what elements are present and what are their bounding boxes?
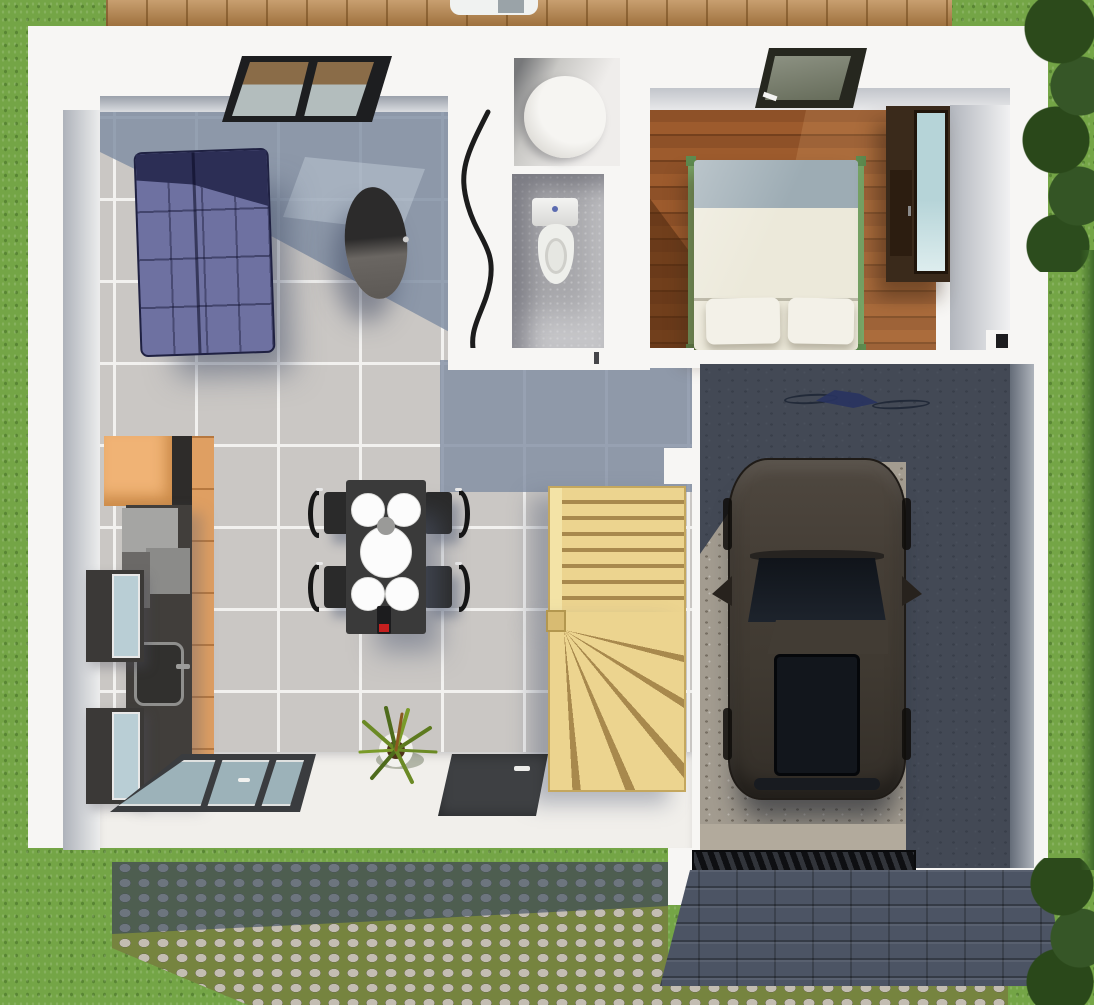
floor-plan-render — [0, 0, 1094, 1005]
chair-chrome-accent — [455, 488, 462, 491]
kitchen-appliance-grey — [146, 548, 190, 594]
deck-object — [450, 0, 538, 15]
skylight-pane — [765, 56, 859, 100]
toilet-tank — [532, 198, 578, 226]
kitchen-upper-cabinet — [104, 436, 174, 506]
door-hinge-mark — [594, 352, 599, 364]
garage-apron — [700, 824, 906, 852]
car — [728, 458, 906, 800]
garage-right-wall-face — [1010, 364, 1034, 868]
flush-button — [552, 206, 558, 212]
chair-seat — [424, 566, 452, 608]
front-door-mat — [438, 754, 548, 816]
car-wheel — [902, 708, 911, 760]
bedroom-wall-notch — [986, 330, 1010, 350]
wardrobe — [886, 106, 950, 282]
stair-stringer — [550, 488, 562, 616]
oven-glass-door — [112, 574, 140, 658]
car-wheel — [723, 708, 732, 760]
hedge-right — [1080, 250, 1094, 870]
deck-object-grey — [498, 0, 524, 13]
staircase-straight-flight — [548, 486, 686, 616]
bedroom-skylight — [755, 48, 867, 108]
door-handle — [238, 778, 250, 782]
hallway-shadow — [440, 360, 692, 492]
pillow — [788, 297, 855, 344]
kitchen-hood — [172, 436, 192, 514]
curved-partition-wall — [448, 100, 510, 368]
wardrobe-glass-door — [914, 110, 948, 274]
notch-shadow — [996, 334, 1008, 348]
door-handle — [514, 766, 530, 771]
car-windshield — [748, 558, 886, 622]
wall-oven — [86, 570, 144, 662]
corner-sofa — [133, 148, 275, 358]
car-wheel — [723, 498, 732, 550]
chair-chrome-accent — [316, 488, 323, 491]
porch-roof — [660, 870, 1064, 986]
stair-newel-post — [546, 610, 566, 632]
bedroom-right-wall-face — [950, 105, 1010, 355]
car-wheel — [902, 498, 911, 550]
wine-label — [379, 624, 389, 632]
wall-oven — [86, 708, 144, 804]
sofa-backrest — [136, 150, 274, 355]
round-shower-tray — [524, 76, 606, 158]
wardrobe-handle — [908, 206, 911, 216]
toilet-seat — [545, 238, 567, 274]
kitchen-appliance-grey — [122, 508, 178, 552]
bed-frame-rail — [858, 160, 864, 352]
trees-top-right — [1016, 0, 1094, 272]
chair-chrome-accent — [455, 562, 462, 565]
kitchen-faucet — [176, 664, 190, 669]
garage-wall-jog — [664, 448, 702, 484]
car-rear-window — [754, 778, 880, 790]
chair-chrome-accent — [316, 562, 323, 565]
pillow — [706, 297, 781, 344]
car-sunroof — [774, 654, 860, 776]
kitchen-cabinet-fronts — [190, 436, 214, 802]
potted-plant — [346, 694, 446, 794]
living-room-skylight — [222, 56, 392, 122]
plant-icon — [346, 694, 446, 794]
wine-bottle — [377, 606, 391, 634]
trees-bottom-right — [1022, 858, 1094, 1005]
bowl — [377, 517, 395, 535]
oven-glass-door — [112, 712, 140, 800]
chair-seat — [424, 492, 452, 534]
staircase-winder — [548, 612, 686, 792]
